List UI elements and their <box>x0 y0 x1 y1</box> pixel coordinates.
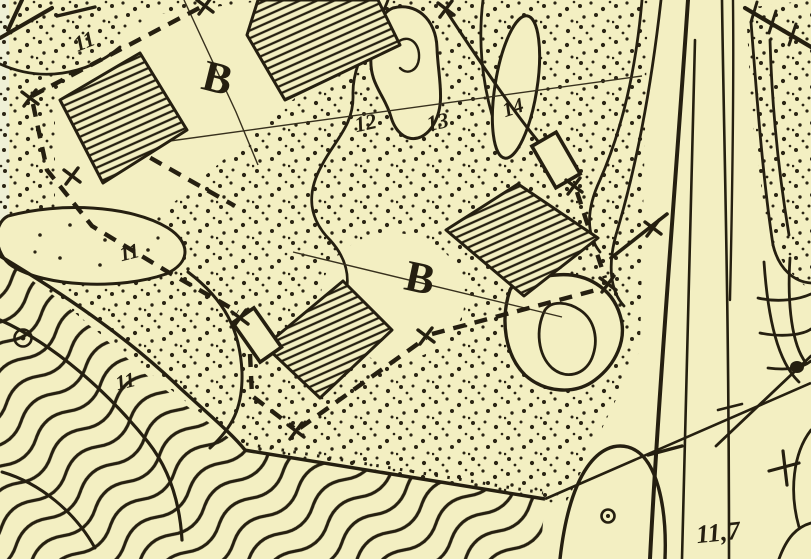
map-canvas: B B 11 11 11 12 13 14 11,7 <box>0 0 811 559</box>
label-spot-height: 11,7 <box>695 516 743 550</box>
scanned-map-image: B B 11 11 11 12 13 14 11,7 <box>0 0 811 559</box>
